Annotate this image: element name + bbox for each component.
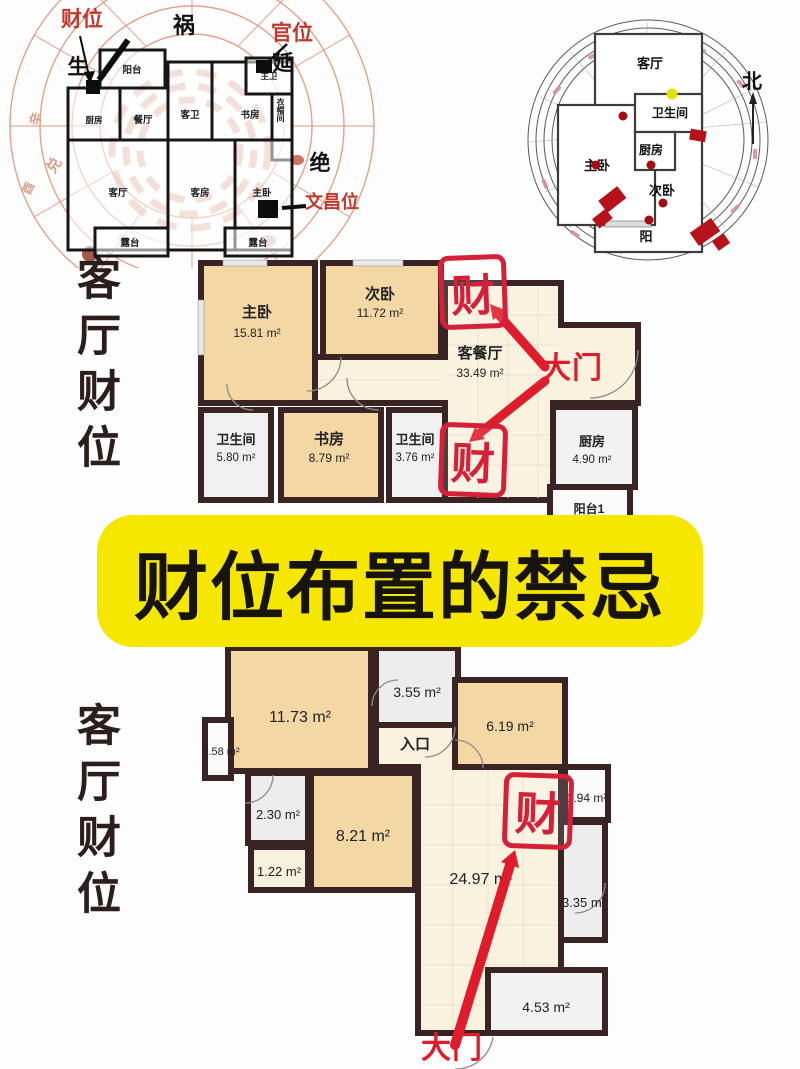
- position-label-guanwei: 官位: [271, 21, 313, 45]
- ring-floorplan-walls: [558, 34, 702, 252]
- room-area: 3.35 m²: [562, 895, 607, 910]
- room-area: 3.76 m²: [396, 452, 435, 464]
- room-area: 11.73 m²: [269, 709, 332, 726]
- room-name: 书房: [314, 430, 344, 448]
- wealth-stamp-bottom: 财: [502, 772, 575, 850]
- position-label-jue: 绝: [310, 151, 331, 175]
- position-label-huo: 祸: [173, 13, 195, 38]
- room-label: 露台: [120, 237, 140, 249]
- room-area: 4.90 m²: [573, 454, 612, 466]
- room-label: 卫生间: [652, 105, 688, 120]
- title-banner-text: 财位布置的禁忌: [134, 528, 666, 635]
- room-name: 次卧: [365, 285, 395, 303]
- room-label: 客厅: [637, 56, 663, 71]
- floorplan-mid-canvas: 主卧 15.81 m² 次卧 11.72 m² 客餐厅 33.49 m² 卫生间…: [193, 255, 648, 521]
- room-name: 阳台1: [574, 501, 605, 516]
- room-area: 3.55 m²: [393, 684, 441, 700]
- floorplan-bottom-canvas: 11.73 m² 3.55 m² 6.19 m² 0.58 m² 入口 2.30…: [193, 645, 648, 1069]
- room-area: 8.79 m²: [309, 451, 350, 465]
- north-indicator: 北: [742, 70, 762, 144]
- ring-char: 酉: [19, 180, 37, 197]
- room-area: 5.80 m²: [217, 452, 256, 464]
- room-label-wardrobe: 衣帽间: [275, 98, 286, 122]
- main-door-label-bottom: 大门: [421, 1023, 483, 1067]
- side-label-bottom: 客厅财位: [72, 702, 116, 926]
- wealth-stamp-lower: 财: [438, 422, 509, 498]
- fengshui-infographic: 辛 兑 酉 申 阳台 厨房 餐厅 客: [0, 0, 800, 1069]
- room-area: 6.19 m²: [486, 718, 534, 734]
- room-label: 客卫: [179, 109, 200, 121]
- room-label: 露台: [248, 237, 268, 249]
- room-label: 主卧: [252, 187, 272, 199]
- room-area: 2.30 m²: [256, 807, 301, 822]
- room-name: 卫生间: [216, 432, 255, 447]
- position-label-sheng: 生: [68, 55, 89, 79]
- position-label-caiwei: 财位: [61, 7, 103, 31]
- room-area: 11.72 m²: [357, 306, 403, 320]
- bagua-compass-diagram: 辛 兑 酉 申 阳台 厨房 餐厅 客: [0, 0, 385, 268]
- ring-char: 辛: [27, 111, 45, 127]
- room-area: 0.58 m²: [202, 746, 240, 758]
- window-bar: [605, 221, 651, 227]
- yellow-star-dot: [667, 89, 678, 100]
- floorplan-mid: 主卧 15.81 m² 次卧 11.72 m² 客餐厅 33.49 m² 卫生间…: [193, 255, 648, 521]
- room-label: 次卧: [649, 183, 675, 198]
- room-area: 1.22 m²: [257, 864, 302, 879]
- room-label: 阳: [639, 229, 652, 244]
- room-area: 33.49 m²: [456, 366, 503, 380]
- room-name: 厨房: [579, 434, 605, 449]
- wealth-stamp-upper: 财: [438, 254, 509, 330]
- room-label: 书房: [240, 109, 259, 121]
- room-name: 卫生间: [395, 432, 434, 447]
- position-label-wenchang: 文昌位: [305, 191, 359, 212]
- room-label: 厨房: [639, 142, 663, 157]
- room-label: 客房: [189, 187, 209, 199]
- room-label: 阳台: [122, 64, 142, 76]
- room-name: 客餐厅: [456, 344, 502, 362]
- room-name: 主卧: [242, 303, 272, 321]
- room-area: 15.81 m²: [233, 326, 280, 340]
- room-area: 8.21 m²: [336, 828, 391, 845]
- ring-char: 兑: [42, 154, 65, 177]
- room-area: 4.53 m²: [522, 999, 570, 1015]
- main-door-label-mid: 大门: [541, 343, 603, 387]
- room-label: 餐厅: [132, 114, 153, 126]
- title-banner: 财位布置的禁忌: [97, 515, 703, 647]
- room-label: 厨房: [85, 115, 102, 125]
- entry-label: 入口: [400, 736, 430, 753]
- position-label-yan: 延: [272, 52, 295, 75]
- ring-compass-diagram: 客厅 卫生间 厨房 主卧 次卧 阳 北: [500, 2, 800, 270]
- side-label-top: 客厅财位: [72, 256, 116, 480]
- north-label: 北: [742, 70, 762, 93]
- room-label: 客厅: [107, 187, 128, 199]
- floorplan-bottom: 11.73 m² 3.55 m² 6.19 m² 0.58 m² 入口 2.30…: [193, 645, 648, 1069]
